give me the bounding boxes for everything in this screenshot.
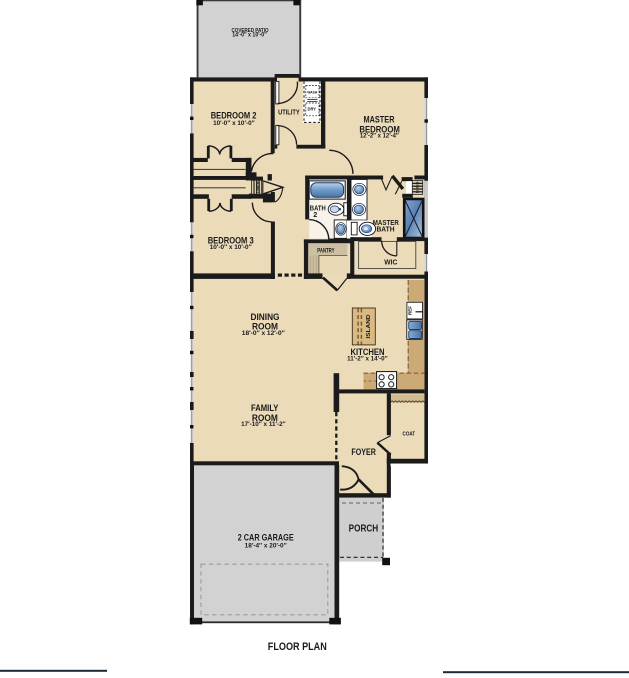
svg-text:COAT: COAT bbox=[403, 432, 416, 438]
svg-text:2 CAR GARAGE: 2 CAR GARAGE bbox=[238, 532, 294, 543]
svg-text:DRY: DRY bbox=[308, 107, 317, 112]
svg-text:LINEN: LINEN bbox=[255, 181, 260, 193]
svg-text:ISLAND: ISLAND bbox=[366, 314, 372, 338]
svg-text:MASTER: MASTER bbox=[364, 115, 396, 125]
svg-text:11′-2″ x 14′-0″: 11′-2″ x 14′-0″ bbox=[347, 356, 388, 363]
svg-text:18′-0″ x 12′-0″: 18′-0″ x 12′-0″ bbox=[242, 330, 286, 337]
svg-text:WIC: WIC bbox=[384, 258, 398, 267]
svg-text:BATH: BATH bbox=[377, 226, 395, 233]
svg-text:FOYER: FOYER bbox=[351, 447, 376, 458]
svg-text:10′-0″ x 10′-0″: 10′-0″ x 10′-0″ bbox=[213, 120, 255, 127]
svg-text:WASH: WASH bbox=[307, 91, 317, 95]
svg-text:BEDROOM 2: BEDROOM 2 bbox=[211, 110, 257, 120]
svg-text:REF: REF bbox=[407, 306, 412, 315]
svg-text:PANTRY: PANTRY bbox=[317, 249, 334, 255]
svg-text:12′-2″ x 12′-4″: 12′-2″ x 12′-4″ bbox=[360, 132, 400, 139]
svg-text:18′-4″ x 20′-0″: 18′-4″ x 20′-0″ bbox=[245, 542, 287, 549]
svg-text:LINEN: LINEN bbox=[415, 182, 420, 194]
svg-text:10′-0″ x 10′-0″: 10′-0″ x 10′-0″ bbox=[210, 244, 253, 251]
svg-text:2: 2 bbox=[313, 210, 317, 219]
svg-text:UTILITY: UTILITY bbox=[278, 110, 300, 117]
svg-text:BATH: BATH bbox=[310, 204, 326, 213]
svg-text:14′-0″ x 10′-0″: 14′-0″ x 10′-0″ bbox=[232, 33, 267, 39]
svg-text:FLOOR PLAN: FLOOR PLAN bbox=[268, 641, 327, 653]
svg-text:17′-10″ x 11′-2″: 17′-10″ x 11′-2″ bbox=[241, 421, 286, 428]
svg-text:PORCH: PORCH bbox=[349, 523, 379, 534]
